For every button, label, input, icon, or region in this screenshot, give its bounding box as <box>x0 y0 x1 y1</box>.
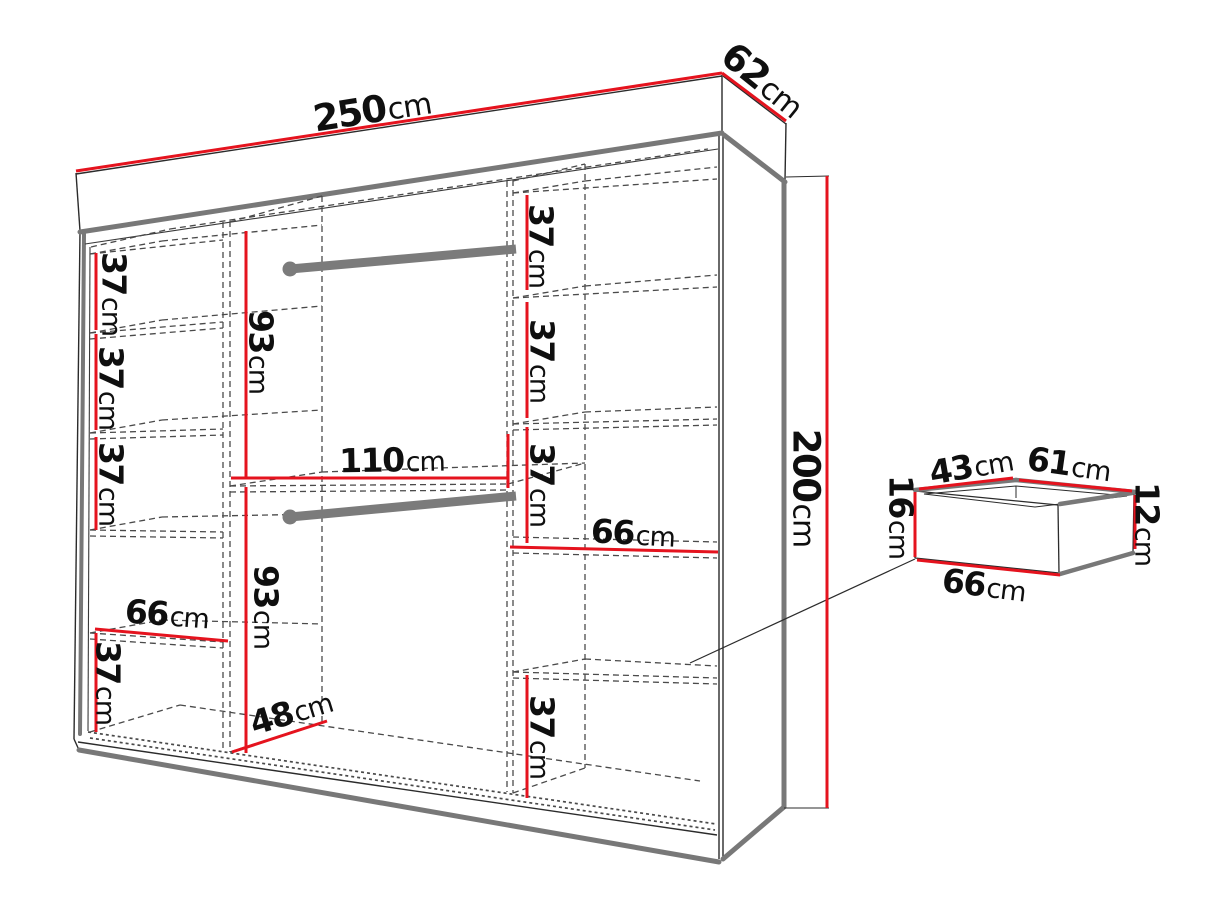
dimension-value: 37 <box>523 319 562 362</box>
dimension-label-left-shelf-4: 37cm <box>92 641 125 725</box>
dimension-label-right-shelf-4: 37cm <box>526 695 559 779</box>
dimension-unit: cm <box>786 504 821 548</box>
dimension-value: 37 <box>95 252 134 295</box>
dimension-unit: cm <box>1069 452 1112 488</box>
dimension-unit: cm <box>243 355 274 394</box>
dimension-label-right-shelf-3: 37cm <box>526 443 559 527</box>
dimension-unit: cm <box>96 297 127 336</box>
dimension-label-lower-hanging-height: 93cm <box>250 565 283 649</box>
dimension-value: 200 <box>785 429 828 502</box>
dimension-unit: cm <box>169 602 210 636</box>
dimension-label-left-shelf-2: 37cm <box>95 346 128 430</box>
dimension-unit: cm <box>523 249 554 288</box>
dimension-label-left-shelf-1: 37cm <box>98 252 131 336</box>
dimension-label-drawer-top-depth: 43cm <box>927 442 1016 489</box>
dimension-label-drawer-width: 66cm <box>940 563 1027 606</box>
dimension-unit: cm <box>1129 527 1160 566</box>
dimension-labels-layer: 250cm62cm200cm37cm37cm37cm66cm37cm93cm93… <box>0 0 1230 923</box>
dimension-value: 93 <box>242 310 281 353</box>
dimension-label-drawer-back-height: 12cm <box>1131 482 1164 566</box>
dimension-value: 93 <box>247 565 286 608</box>
dimension-label-left-shelf-3: 37cm <box>95 442 128 526</box>
dimension-label-left-shelf-width: 66cm <box>124 595 210 634</box>
dimension-unit: cm <box>883 520 914 559</box>
dimension-value: 37 <box>92 442 131 485</box>
dimension-unit: cm <box>405 447 445 479</box>
dimension-unit: cm <box>635 521 676 554</box>
dimension-unit: cm <box>93 391 124 430</box>
dimension-value: 110 <box>339 440 404 480</box>
dimension-value: 16 <box>882 475 921 518</box>
dimension-unit: cm <box>248 610 279 649</box>
dimension-label-middle-section-width: 110cm <box>339 443 445 478</box>
dimension-value: 43 <box>926 447 975 493</box>
dimension-value: 250 <box>310 87 389 141</box>
dimension-unit: cm <box>972 446 1016 483</box>
dimension-unit: cm <box>524 488 555 527</box>
dimension-label-drawer-front-height: 16cm <box>885 475 918 559</box>
dimension-label-drawer-top-width: 61cm <box>1025 442 1113 486</box>
dimension-label-wardrobe-height: 200cm <box>788 429 825 547</box>
dimension-value: 37 <box>89 641 128 684</box>
dimension-value: 37 <box>92 346 131 389</box>
dimension-label-wardrobe-depth: 62cm <box>715 36 812 124</box>
dimension-value: 37 <box>523 443 562 486</box>
dimension-label-wardrobe-width: 250cm <box>311 82 434 137</box>
dimension-value: 37 <box>523 695 562 738</box>
dimension-unit: cm <box>524 740 555 779</box>
dimension-label-right-shelf-1: 37cm <box>525 204 558 288</box>
dimension-label-upper-hanging-height: 93cm <box>245 310 278 394</box>
dimension-label-right-shelf-2: 37cm <box>526 319 559 403</box>
dimension-label-floor-depth: 48cm <box>246 684 336 740</box>
dimension-unit: cm <box>93 487 124 526</box>
dimension-unit: cm <box>90 686 121 725</box>
dimension-value: 37 <box>522 204 561 247</box>
dimension-value: 61 <box>1025 439 1073 484</box>
dimension-unit: cm <box>290 688 337 729</box>
dimension-unit: cm <box>524 364 555 403</box>
dimension-value: 66 <box>940 561 987 605</box>
dimension-unit: cm <box>985 573 1028 609</box>
dimension-value: 12 <box>1128 482 1167 525</box>
dimension-value: 66 <box>590 511 635 552</box>
dimension-unit: cm <box>385 86 434 127</box>
dimension-value: 66 <box>124 592 170 634</box>
dimension-label-right-shelf-width: 66cm <box>590 514 676 551</box>
diagram-canvas: 250cm62cm200cm37cm37cm37cm66cm37cm93cm93… <box>0 0 1230 923</box>
